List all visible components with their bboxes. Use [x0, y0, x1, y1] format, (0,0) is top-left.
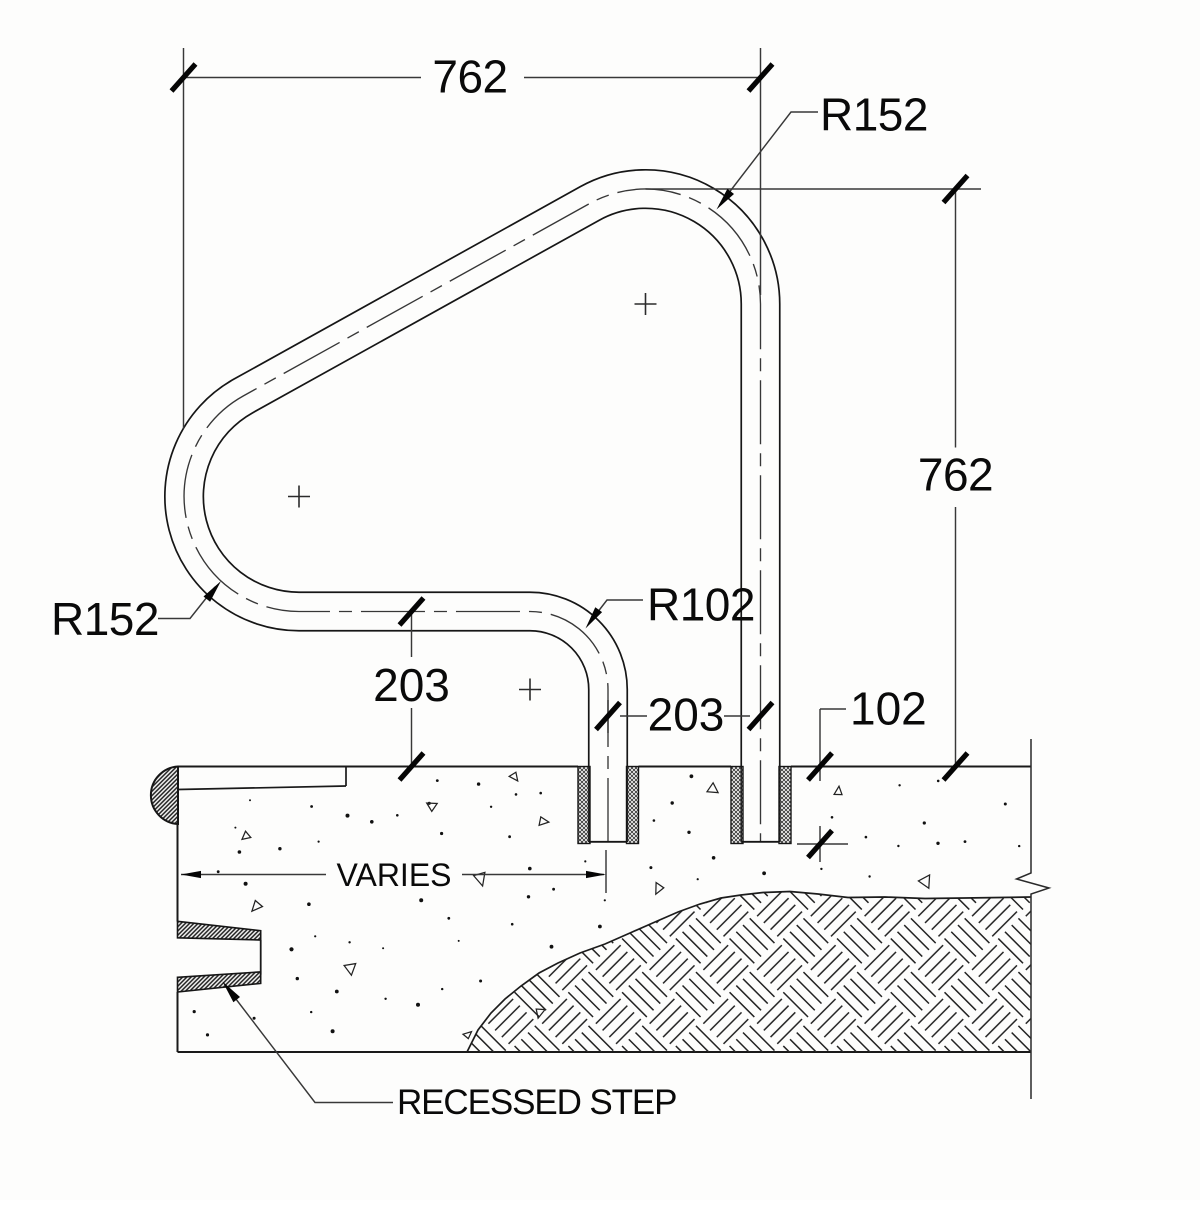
svg-text:102: 102 — [850, 683, 927, 735]
svg-text:R152: R152 — [820, 89, 928, 141]
svg-text:762: 762 — [918, 449, 993, 501]
svg-text:R152: R152 — [51, 593, 159, 645]
svg-text:203: 203 — [648, 689, 725, 741]
svg-text:VARIES: VARIES — [337, 857, 452, 893]
svg-text:203: 203 — [373, 659, 450, 711]
svg-text:762: 762 — [432, 51, 507, 103]
svg-text:R102: R102 — [647, 579, 755, 631]
svg-text:RECESSED STEP: RECESSED STEP — [397, 1083, 676, 1122]
